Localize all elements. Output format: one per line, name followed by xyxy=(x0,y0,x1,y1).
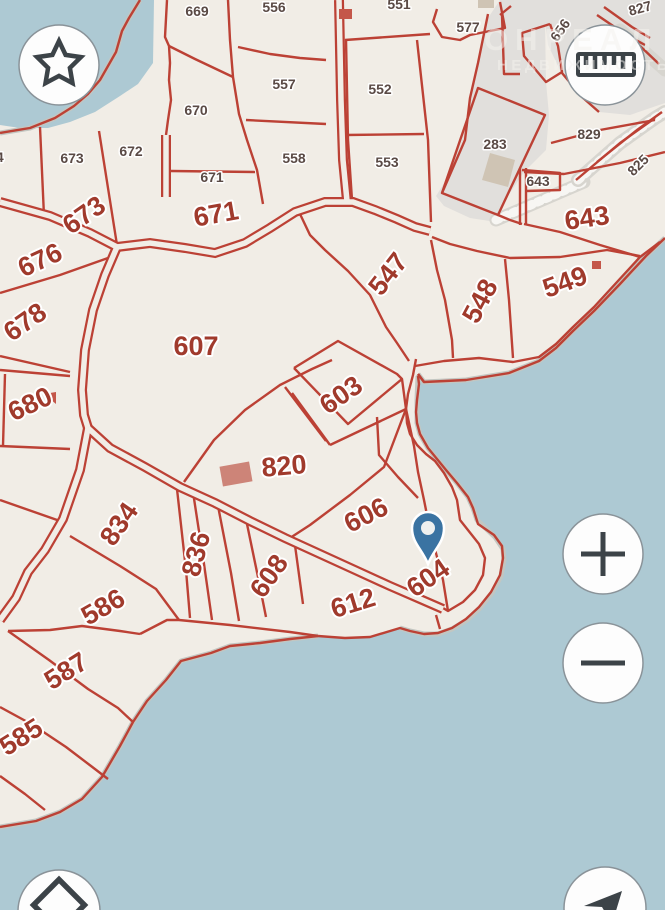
svg-text:283: 283 xyxy=(483,136,507,152)
svg-text:557: 557 xyxy=(272,76,296,92)
svg-text:820: 820 xyxy=(260,449,308,483)
svg-text:674: 674 xyxy=(0,149,4,165)
svg-text:556: 556 xyxy=(262,0,286,15)
svg-text:829: 829 xyxy=(577,126,601,142)
svg-text:669: 669 xyxy=(185,3,209,19)
svg-text:552: 552 xyxy=(368,81,392,97)
svg-text:672: 672 xyxy=(119,143,143,159)
svg-text:558: 558 xyxy=(282,150,306,166)
svg-text:673: 673 xyxy=(60,150,84,166)
svg-text:607: 607 xyxy=(173,331,218,361)
svg-text:577: 577 xyxy=(456,19,480,35)
svg-text:551: 551 xyxy=(387,0,411,12)
svg-text:НЕДВИЖИМОСТЬ: НЕДВИЖИМОСТЬ xyxy=(497,57,665,74)
svg-text:643: 643 xyxy=(526,173,550,189)
svg-text:ОНРЕАЛ: ОНРЕАЛ xyxy=(484,22,658,57)
svg-text:670: 670 xyxy=(184,102,208,118)
svg-text:643: 643 xyxy=(563,200,612,236)
svg-text:671: 671 xyxy=(200,169,224,185)
svg-text:553: 553 xyxy=(375,154,399,170)
